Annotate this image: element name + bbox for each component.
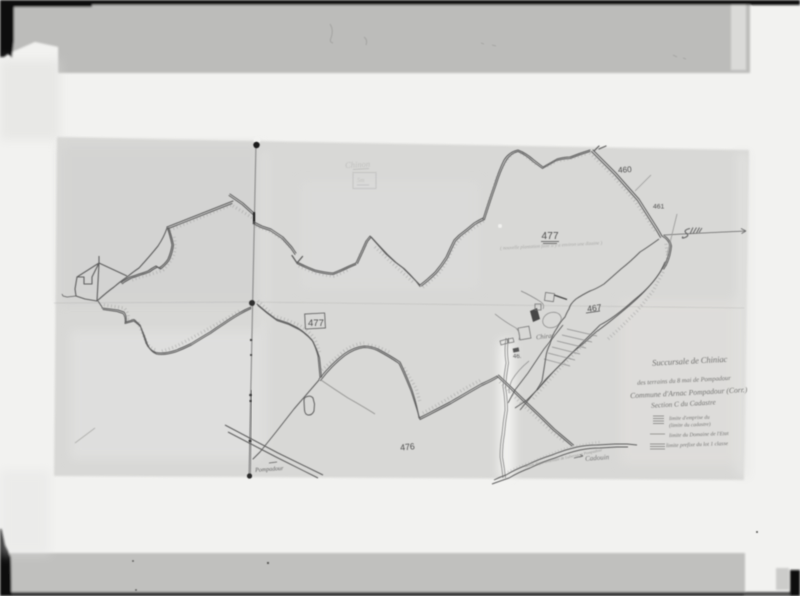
svg-text:46.: 46. — [513, 354, 522, 360]
svg-text:(limite du cadastre): (limite du cadastre) — [669, 421, 711, 429]
svg-text:460: 460 — [618, 165, 633, 175]
svg-text:5m: 5m — [357, 178, 365, 184]
svg-text:461: 461 — [653, 204, 665, 211]
svg-text:477: 477 — [542, 231, 560, 242]
svg-text:477: 477 — [308, 318, 324, 329]
svg-text:476: 476 — [400, 441, 416, 452]
